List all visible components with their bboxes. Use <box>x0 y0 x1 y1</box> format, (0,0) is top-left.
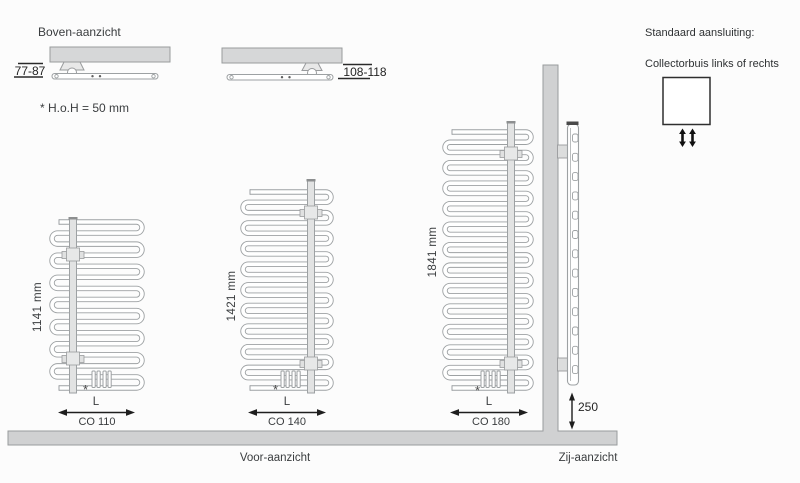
side-view-radiator <box>558 122 579 430</box>
connection-legend-symbol <box>663 78 710 148</box>
side-view-label: Zij-aanzicht <box>559 452 618 464</box>
radiator-height-label-co180: 1841 mm <box>427 227 439 278</box>
model-label-co180: CO 180 <box>472 416 510 428</box>
collector-tube <box>508 122 515 393</box>
footnote-asterisk: * <box>273 383 278 396</box>
connection-fitting <box>92 371 95 388</box>
width-dim-label-co110: L <box>93 396 99 408</box>
legend-title: Standaard aansluiting: <box>645 27 754 39</box>
floor-distance-label: 250 <box>578 400 598 414</box>
hoh-note: * H.o.H = 50 mm <box>40 101 129 115</box>
radiator-height-label-co140: 1421 mm <box>226 271 238 322</box>
footnote-asterisk: * <box>83 383 88 396</box>
connection-fitting <box>103 371 106 388</box>
front-view-label: Voor-aanzicht <box>240 452 310 464</box>
dim-108-118: 108-118 <box>340 65 390 79</box>
top-view-title: Boven-aanzicht <box>38 25 121 39</box>
mounting-bracket <box>62 248 84 261</box>
radiator-drawing-co-110 <box>52 217 142 416</box>
connection-fitting <box>97 371 100 388</box>
model-label-co140: CO 140 <box>268 416 306 428</box>
connection-fitting <box>492 371 495 388</box>
model-label-co110: CO 110 <box>78 416 115 428</box>
width-dim-label-co140: L <box>284 396 290 408</box>
connection-fitting <box>297 371 300 388</box>
connection-fitting <box>481 371 484 388</box>
radiator-drawing-co-140 <box>243 179 331 416</box>
mounting-bracket <box>300 206 322 219</box>
width-dim-label-co180: L <box>486 396 492 408</box>
footnote-asterisk: * <box>475 384 480 397</box>
collector-box-icon <box>663 78 710 125</box>
radiator-height-label-co110: 1141 mm <box>32 282 44 332</box>
radiator-drawing-co-180 <box>445 121 531 416</box>
collector-tube <box>70 218 77 393</box>
connection-fitting <box>286 371 289 388</box>
connection-fitting <box>281 371 284 388</box>
connection-fitting <box>497 371 500 388</box>
mounting-bracket <box>500 147 522 160</box>
connection-fitting <box>292 371 295 388</box>
technical-drawing-page: Boven-aanzicht 77-87 108-118 * H.o.H = 5… <box>0 0 800 483</box>
connection-fitting <box>486 371 489 388</box>
connection-fitting <box>108 371 111 388</box>
diagram-canvas <box>0 0 800 483</box>
legend-subtitle: Collectorbuis links of rechts <box>645 58 779 70</box>
flow-arrows-icon <box>679 129 696 148</box>
dim-77-87: 77-87 <box>13 64 47 78</box>
